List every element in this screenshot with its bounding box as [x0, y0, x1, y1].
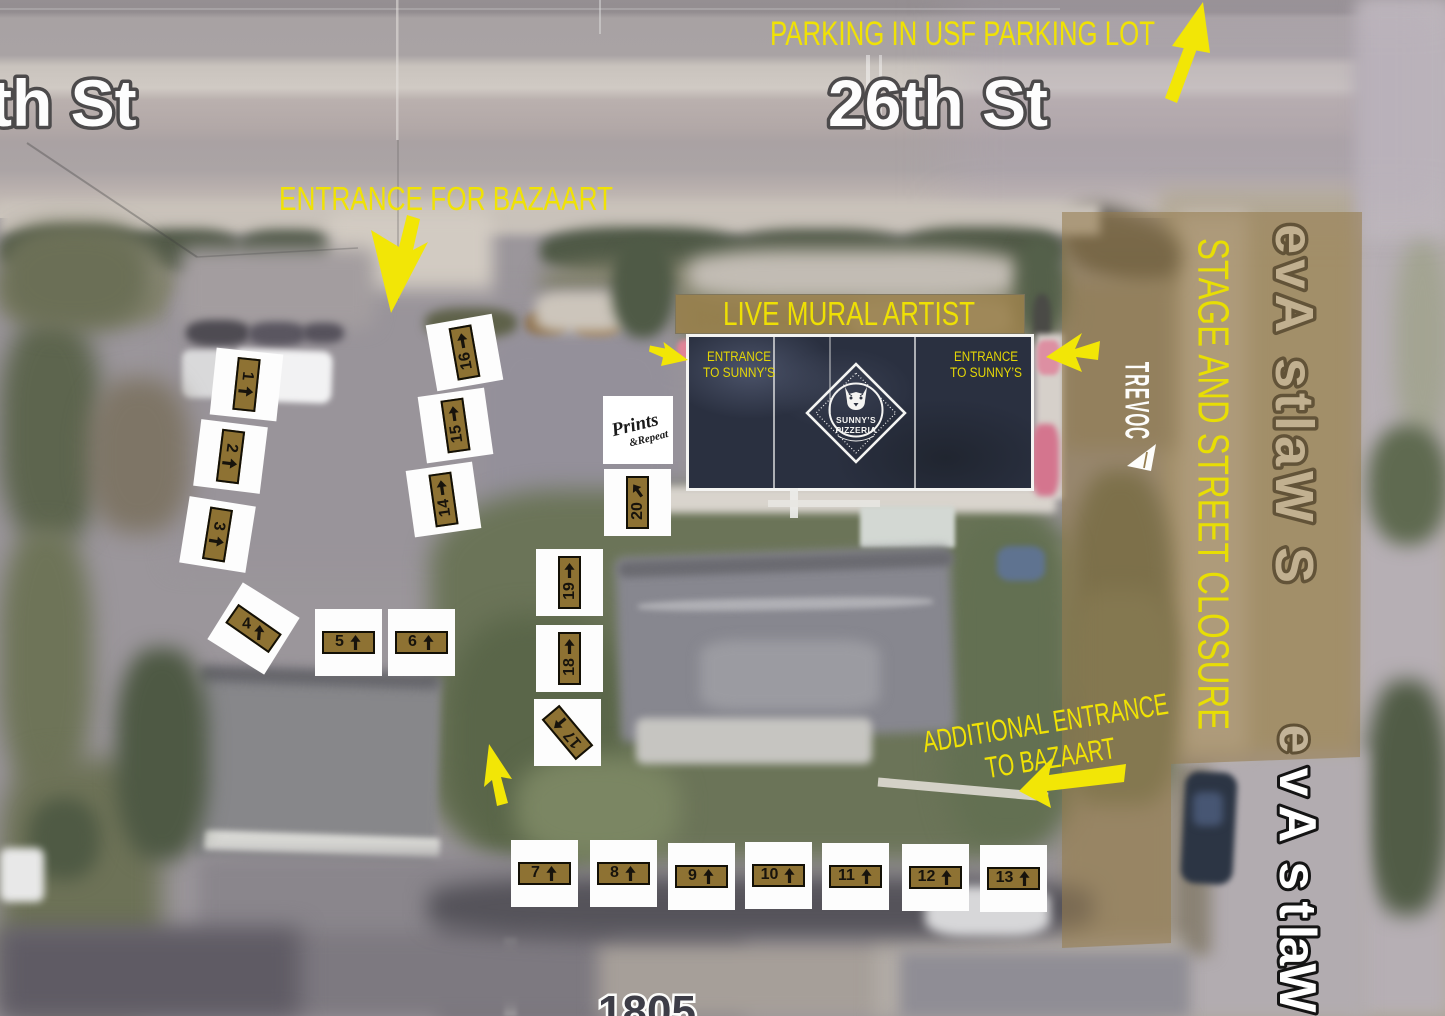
svg-text:TO SUNNY’S: TO SUNNY’S — [950, 365, 1022, 380]
svg-text:PARKING IN USF PARKING LOT: PARKING IN USF PARKING LOT — [770, 15, 1155, 53]
svg-text:TO SUNNY’S: TO SUNNY’S — [703, 365, 775, 380]
svg-text:ENTRANCE FOR BAZAART: ENTRANCE FOR BAZAART — [279, 180, 613, 217]
svg-text:ENTRANCE: ENTRANCE — [707, 349, 771, 364]
svg-text:ENTRANCE: ENTRANCE — [954, 349, 1018, 364]
svg-text:LIVE MURAL ARTIST: LIVE MURAL ARTIST — [723, 295, 975, 332]
